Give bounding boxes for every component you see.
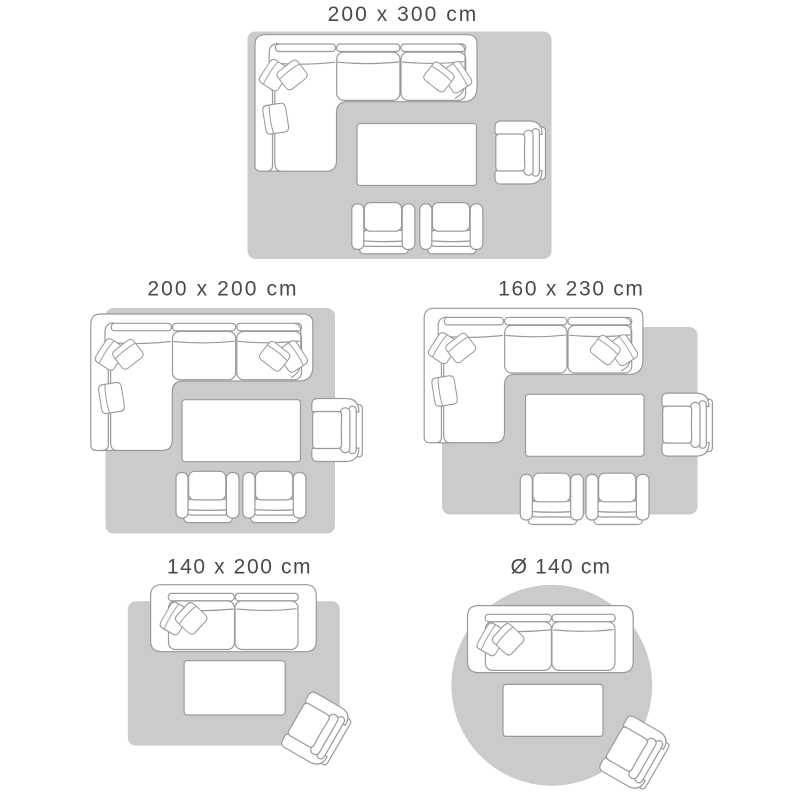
svg-text:160 x 230 cm: 160 x 230 cm <box>498 278 644 301</box>
svg-text:Ø 140 cm: Ø 140 cm <box>511 556 612 579</box>
svg-text:140 x 200 cm: 140 x 200 cm <box>167 556 312 579</box>
svg-text:200 x 200 cm: 200 x 200 cm <box>147 278 298 301</box>
svg-text:200 x 300 cm: 200 x 300 cm <box>328 3 479 26</box>
